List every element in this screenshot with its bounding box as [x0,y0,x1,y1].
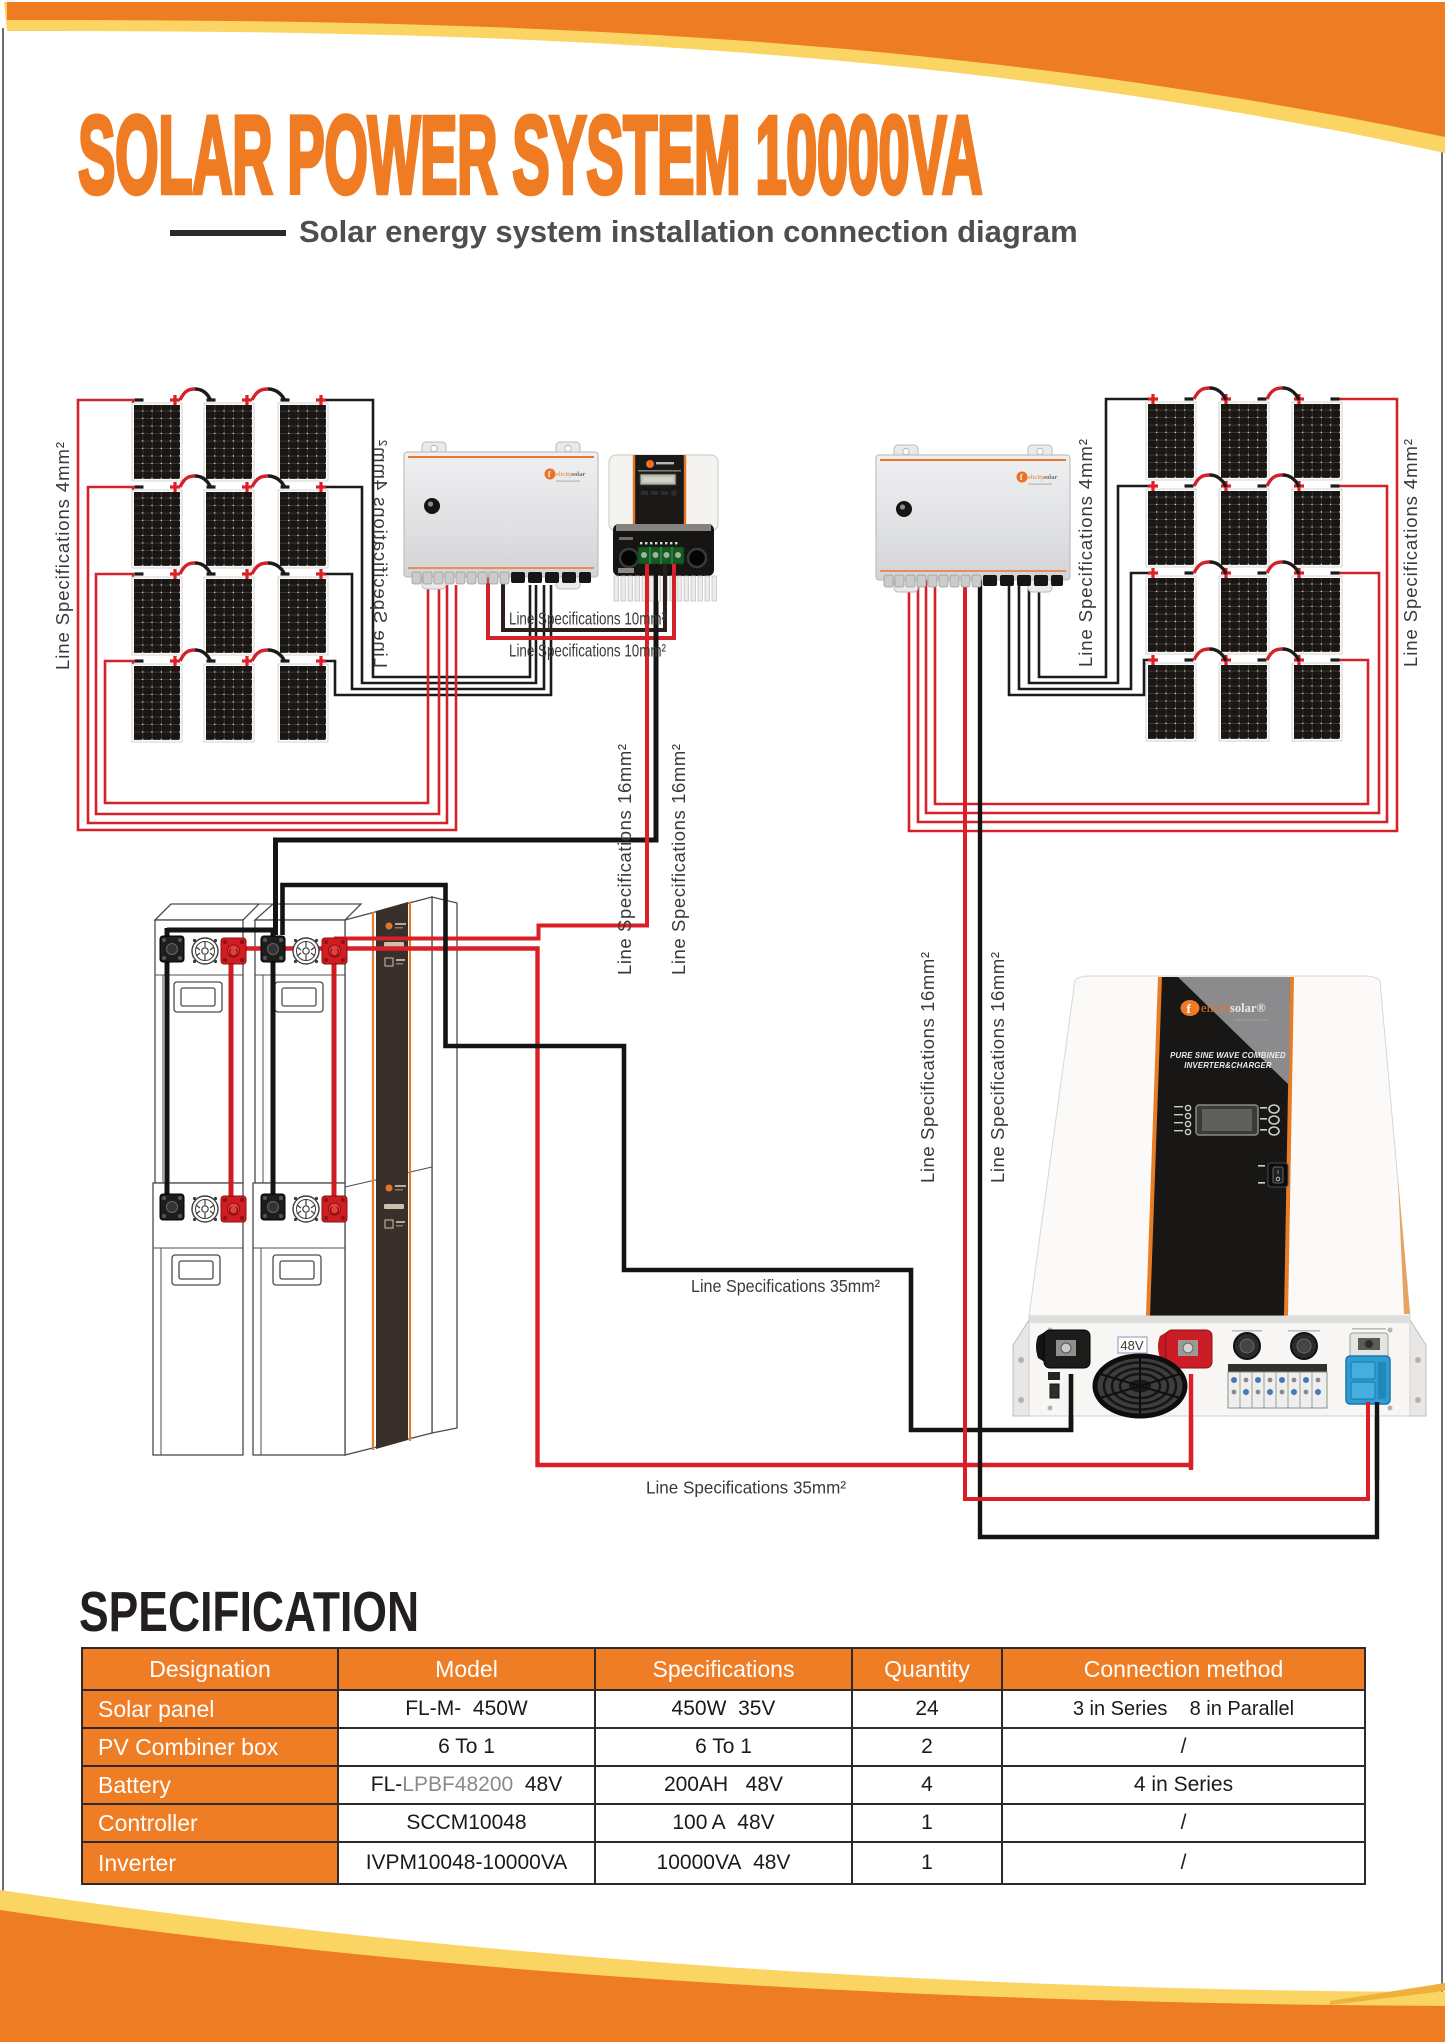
svg-text:Line Specifications 35mm²: Line Specifications 35mm² [691,1276,880,1296]
svg-text:Line Specifications 4mm²: Line Specifications 4mm² [1075,439,1096,667]
svg-text:Line Specifications 16mm²: Line Specifications 16mm² [987,952,1008,1183]
svg-text:PURE SINE WAVE COMBINED: PURE SINE WAVE COMBINED [1170,1051,1286,1060]
svg-text:f: f [1187,1001,1192,1016]
svg-text:Line Specifications 4mm²: Line Specifications 4mm² [52,442,73,670]
svg-text:elicity: elicity [1201,1001,1233,1015]
svg-text:Line Specifications 16mm²: Line Specifications 16mm² [668,744,689,975]
svg-text:48V: 48V [1120,1338,1143,1353]
svg-text:Line Specifications 4mm²: Line Specifications 4mm² [1400,439,1421,667]
svg-text:Line Specifications 16mm²: Line Specifications 16mm² [614,744,635,975]
svg-text:INVERTER&CHARGER: INVERTER&CHARGER [1184,1061,1272,1070]
svg-text:Line Specifications 4mm²: Line Specifications 4mm² [370,440,391,668]
svg-text:Line Specifications 16mm²: Line Specifications 16mm² [917,952,938,1183]
svg-text:Line Specifications 10mm²: Line Specifications 10mm² [509,641,666,661]
svg-text:Line Specifications 10mm²: Line Specifications 10mm² [509,609,666,629]
svg-text:Line Specifications 35mm²: Line Specifications 35mm² [646,1478,846,1498]
svg-text:solar®: solar® [1230,1001,1266,1015]
